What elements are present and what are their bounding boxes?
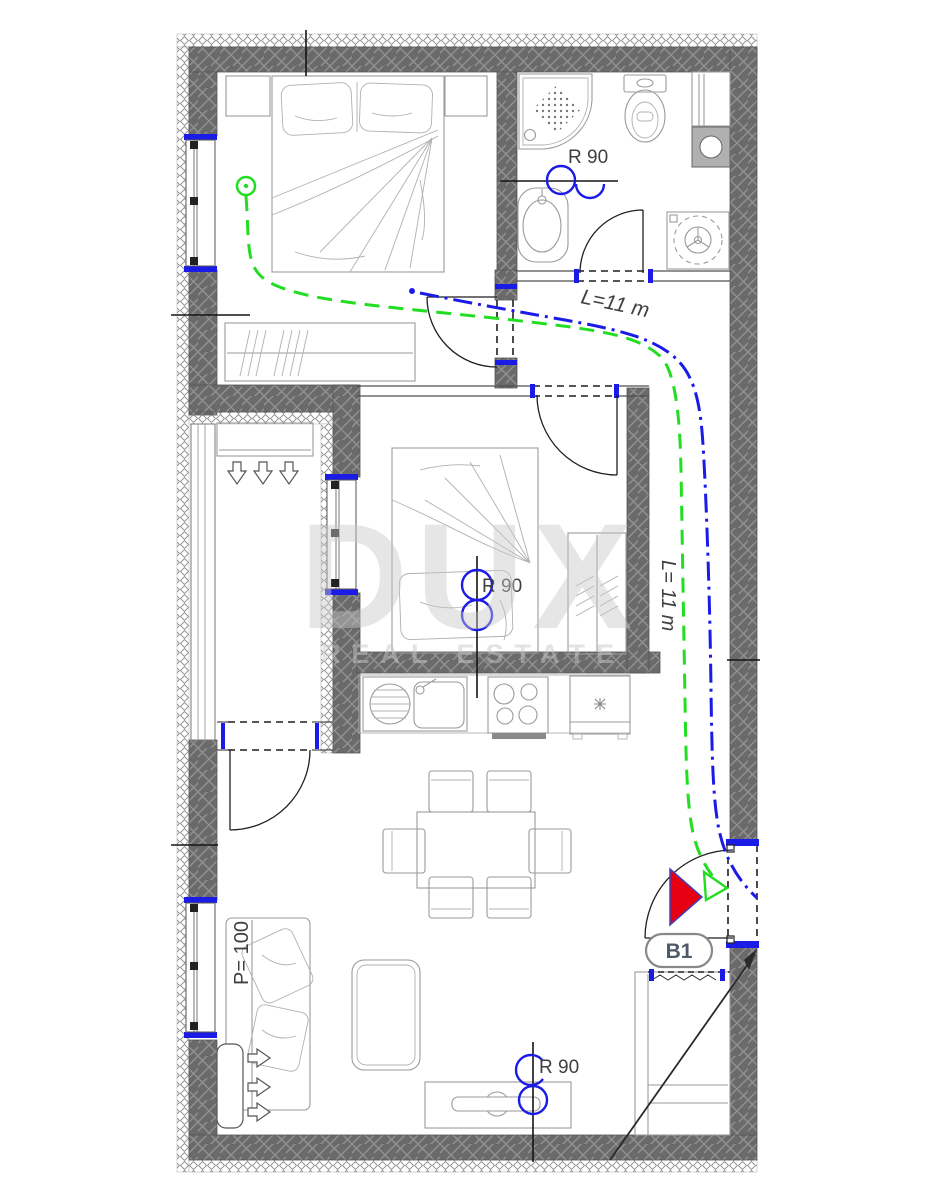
watermark: DUX REAL ESTATE [300, 492, 641, 669]
wall-left-1 [189, 72, 217, 136]
door-arc-bathroom [580, 210, 643, 273]
exit-triangle-icon [670, 869, 702, 925]
entry-closet [635, 969, 730, 1135]
exit-tag-label: B1 [666, 940, 693, 963]
route-length-corridor-label: L= 11 m [657, 560, 679, 631]
wall-right-bottom [730, 947, 757, 1135]
route-arrow-icon [704, 872, 727, 900]
door-arc-loggia [230, 750, 310, 830]
insulation-top [177, 34, 757, 47]
loggia-parapet [191, 424, 215, 740]
door-arc-bedroom2 [537, 395, 617, 475]
insulation-bottom [189, 1160, 757, 1172]
s-symbol-bathroom [547, 166, 604, 198]
watermark-line1: DUX [300, 492, 641, 660]
bedroom2-door-opening [533, 386, 617, 396]
loggia-shelf [217, 423, 313, 456]
chair-icon [487, 771, 531, 812]
window-bedroom1 [184, 134, 217, 272]
double-bed-icon [272, 76, 444, 272]
terrace-area-label: P= 100 [231, 921, 253, 985]
chair-icon [383, 829, 425, 873]
bedroom1-furniture [225, 76, 487, 381]
snowflake-icon [594, 698, 606, 710]
fire-rating-bathroom-label: R 90 [568, 147, 608, 168]
sink-icon [518, 188, 568, 262]
shower-icon [519, 74, 592, 149]
wall-left-3 [189, 740, 217, 900]
living-room [217, 771, 571, 1128]
washing-machine-icon [667, 212, 729, 269]
partition-bedroom2-top [357, 384, 649, 398]
stove-icon [488, 677, 548, 739]
watermark-line2: REAL ESTATE [321, 639, 625, 669]
kitchen-sink-icon [363, 677, 467, 731]
fridge-icon [570, 676, 630, 739]
airflow-right-arrows [248, 1049, 270, 1121]
airflow-down-arrows [228, 462, 298, 484]
dining-chairs [383, 771, 571, 918]
wall-top [189, 47, 757, 72]
nightstand-left [226, 76, 270, 116]
hook-rail [652, 975, 716, 980]
nightstand-right [445, 76, 487, 116]
dresser-icon [225, 323, 415, 381]
bathroom-door-opening [577, 271, 650, 281]
wall-bedroom1-bathroom [497, 72, 517, 280]
wall-right-top [730, 47, 757, 843]
door-arc-bedroom1 [427, 297, 497, 367]
coffee-table-icon [352, 960, 420, 1070]
partition-loggia-living [217, 722, 333, 750]
utility-shaft-icon [692, 72, 730, 167]
floor-plan: B1 [0, 0, 950, 1200]
fire-rating-living-label: R 90 [539, 1057, 579, 1078]
chair-icon [429, 877, 473, 918]
wall-left-4 [189, 1040, 217, 1135]
toilet-icon [624, 75, 666, 142]
window-living [184, 897, 217, 1038]
loggia [217, 423, 313, 484]
exit-tag-b1: B1 [646, 934, 712, 967]
tv-console-icon [425, 1082, 571, 1128]
route-length-hall-label: L=11 m [579, 285, 651, 322]
partition-bathroom-bottom [517, 269, 730, 283]
chair-icon [429, 771, 473, 812]
chair-icon [487, 877, 531, 918]
wall-bedroom1-bottom [189, 385, 357, 412]
kitchen [359, 675, 630, 739]
radiator-icon [217, 1044, 243, 1128]
wall-bottom [189, 1135, 757, 1160]
wall-bedroom2-left-top [333, 385, 360, 477]
loggia-door-opening [228, 722, 312, 750]
floor-plan-page: B1 [0, 0, 950, 1200]
